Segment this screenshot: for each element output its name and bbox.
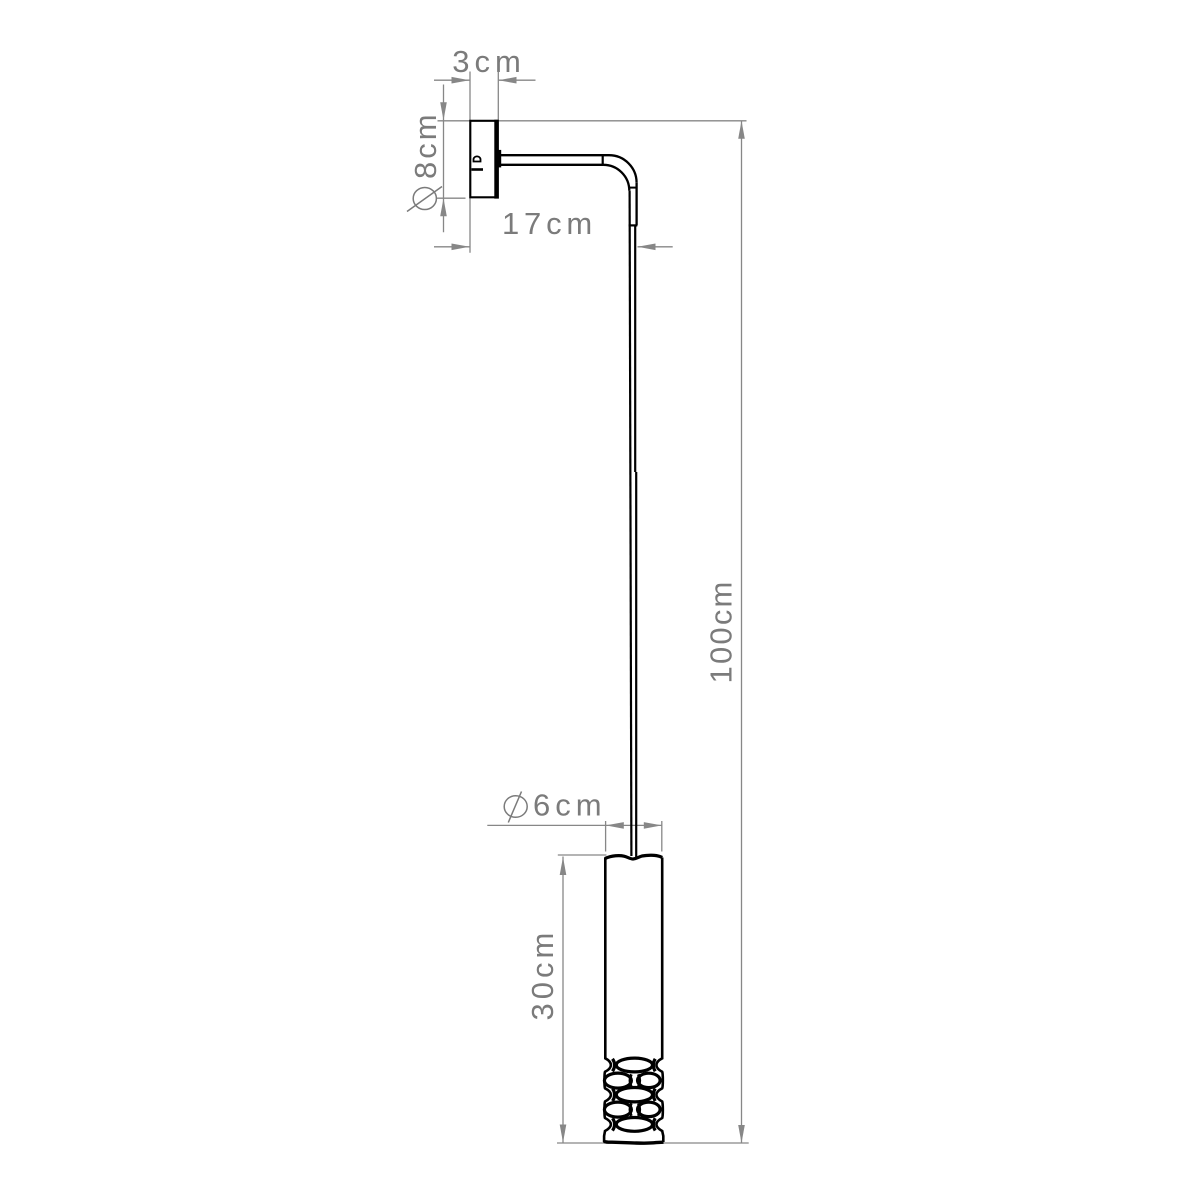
svg-text:8cm: 8cm bbox=[408, 111, 443, 179]
svg-text:17cm: 17cm bbox=[502, 206, 597, 241]
svg-text:100cm: 100cm bbox=[704, 579, 739, 683]
svg-text:6cm: 6cm bbox=[533, 788, 607, 823]
svg-text:3cm: 3cm bbox=[452, 44, 526, 79]
svg-text:30cm: 30cm bbox=[525, 929, 560, 1021]
